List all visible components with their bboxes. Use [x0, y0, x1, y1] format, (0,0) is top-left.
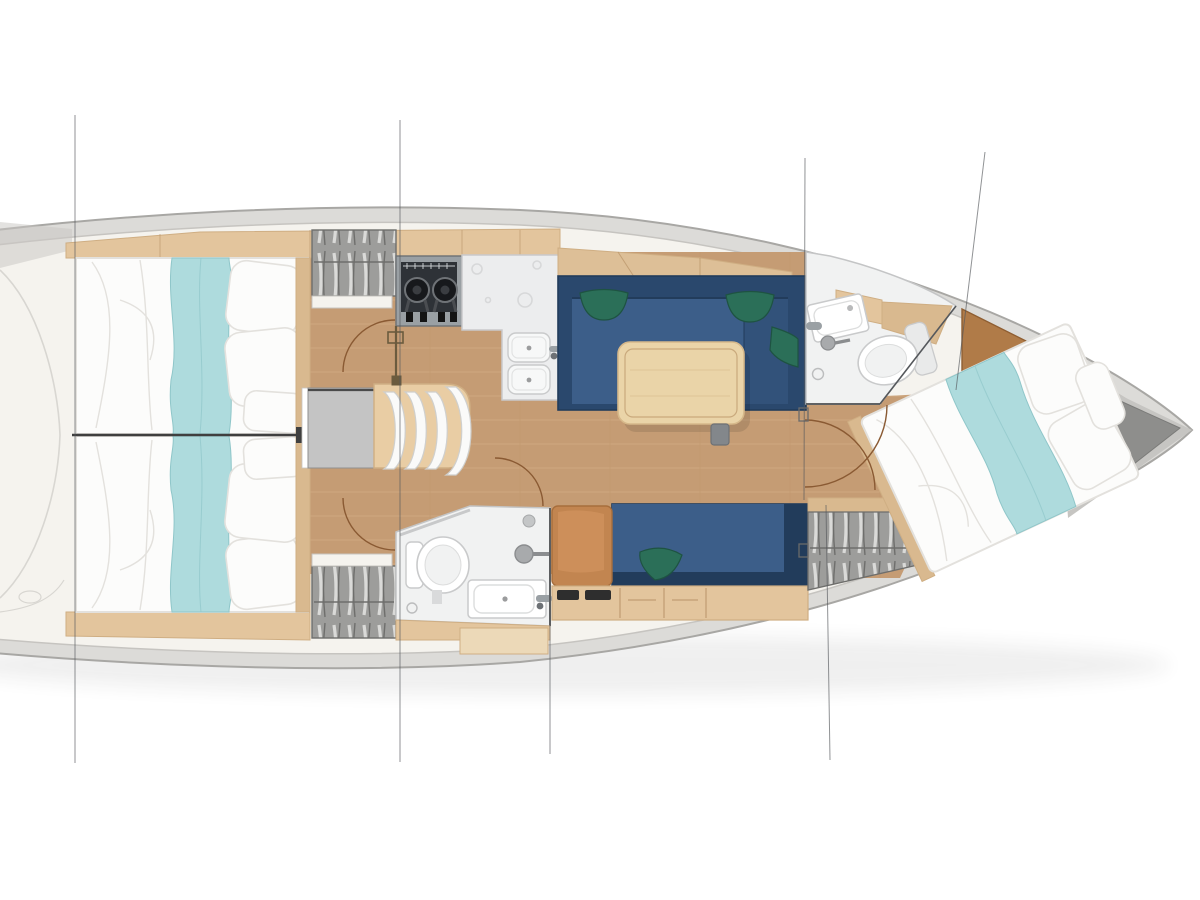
- yacht-layout-plan: [0, 0, 1200, 900]
- aft-head: [396, 506, 552, 654]
- chart-table: [302, 388, 374, 468]
- wardrobe-aft-top: [312, 230, 396, 308]
- settee-bench-bottom: [612, 504, 808, 588]
- bathroom-sink: [468, 580, 552, 618]
- wardrobe-aft-bottom: [312, 554, 396, 638]
- under-bench-cabinets: [552, 586, 808, 620]
- aft-cabin-bottom-shelf: [66, 612, 310, 640]
- saloon-table: [618, 342, 750, 445]
- double-bed-aft-port: [76, 258, 310, 434]
- yacht-floor-plan-page: [0, 0, 1200, 900]
- galley-stove: [396, 256, 462, 326]
- table-leg: [711, 424, 729, 445]
- double-bed-aft-starboard: [76, 436, 310, 612]
- companionway-stairs: [374, 384, 471, 475]
